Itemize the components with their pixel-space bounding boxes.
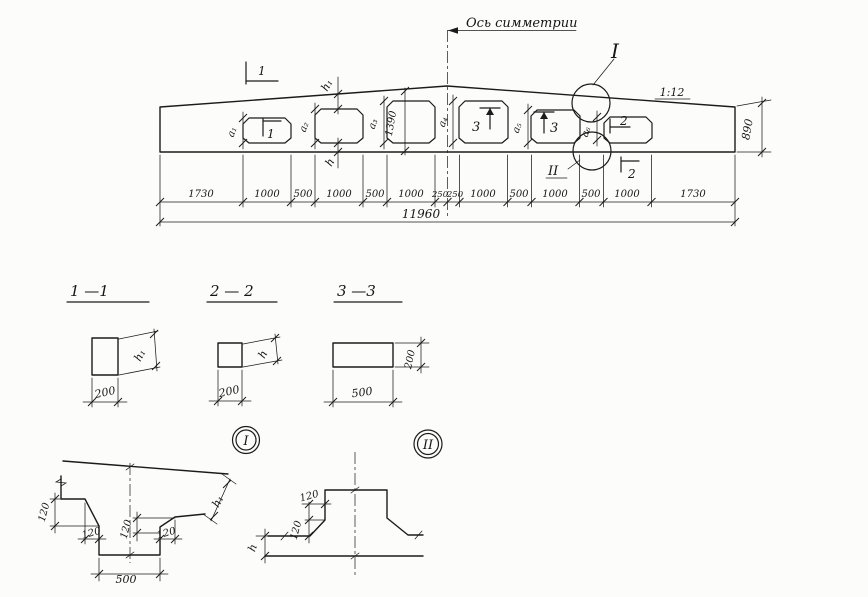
dim-opening-a5: a₅ <box>511 104 532 149</box>
height-890-label: 890 <box>739 118 755 141</box>
cut-1-digit: 1 <box>258 64 266 78</box>
chain-label: 1000 <box>614 189 640 200</box>
section-2-2: 2 — 2 200 h <box>207 282 282 406</box>
opening-4 <box>459 101 508 143</box>
detail-2-dim-h: h <box>245 542 260 553</box>
opening-2 <box>315 109 363 143</box>
dim-opening-a4: a₄ <box>437 95 457 149</box>
opening-6 <box>604 117 652 143</box>
beam-drawing-svg: Ось симметрии 1:12 890 1390 h₁ <box>0 0 868 597</box>
section-cut-2-bottom: 2 <box>621 157 639 181</box>
section-2-title: 2 — 2 <box>209 282 254 300</box>
section-2-height: h <box>256 348 271 360</box>
section-3-shape <box>333 343 393 367</box>
detail-circle-1 <box>572 84 610 122</box>
detail-2-dim-120: 120 <box>299 489 321 505</box>
chain-label: 500 <box>365 189 385 200</box>
a1-label: a₁ <box>226 126 240 139</box>
section-3-3: 3 —3 500 200 <box>324 282 429 407</box>
drawing-sheet: Ось симметрии 1:12 890 1390 h₁ <box>0 0 868 597</box>
a4-label: a₄ <box>437 116 451 129</box>
leader-arrow <box>448 27 458 33</box>
cut-3-digit: 3 <box>550 121 558 136</box>
section-cut-1-top: 1 <box>246 62 278 84</box>
detail-2-dim-120: 120 <box>289 519 305 541</box>
slope-annotation: 1:12 <box>655 86 690 99</box>
section-3-height: 200 <box>403 348 418 371</box>
chain-label: 1000 <box>326 189 352 200</box>
chain-label: 1000 <box>470 189 496 200</box>
section-3-width: 500 <box>351 385 374 401</box>
section-cut-1-bottom: 1 <box>263 118 281 141</box>
symmetry-axis-callout: Ось симметрии <box>448 16 577 34</box>
cut-2-digit: 2 <box>627 167 636 181</box>
chain-label: 1000 <box>398 189 424 200</box>
cut-2-digit: 2 <box>619 114 628 128</box>
svg-text:II: II <box>547 164 559 179</box>
section-cut-3-right: 3 <box>534 112 558 136</box>
section-1-width: 200 <box>93 384 117 401</box>
detail-2-balloon-label: II <box>422 438 434 453</box>
section-1-shape <box>92 338 118 375</box>
dim-opening-a2: a₂ <box>298 103 319 149</box>
a2-label: a₂ <box>298 121 312 134</box>
height-1390-label: 1390 <box>384 109 399 137</box>
detail-2-view: h 120 120 II <box>245 430 442 575</box>
chain-label: 1730 <box>188 189 214 200</box>
detail-1-balloon-label: I <box>242 434 249 449</box>
detail-1-profile <box>61 476 205 555</box>
section-2-width: 200 <box>217 383 241 400</box>
chain-label: 1730 <box>680 189 706 200</box>
detail-2-callout: II <box>546 160 580 179</box>
chain-label: 500 <box>293 189 313 200</box>
a3-label: a₃ <box>367 118 381 131</box>
dim-height-890: 890 <box>737 97 771 157</box>
beam-elevation: Ось симметрии 1:12 890 1390 h₁ <box>156 16 771 226</box>
dim-opening-a3: a₃ <box>367 96 388 149</box>
section-2-shape <box>218 343 242 367</box>
detail-1-view: 120 120 120 120 500 h₁ I <box>37 427 260 587</box>
dim-opening-a1: a₁ <box>226 112 247 149</box>
chain-label: 250 <box>446 190 464 200</box>
detail-circle-2 <box>573 132 611 170</box>
detail-1-callout: I <box>610 39 620 63</box>
h-label: h <box>323 156 338 169</box>
symmetry-axis-label: Ось симметрии <box>466 16 577 31</box>
cut-1-digit: 1 <box>267 127 275 141</box>
slope-label: 1:12 <box>660 86 685 99</box>
cut-3-digit: 3 <box>472 120 480 135</box>
section-1-height: h₁ <box>131 347 148 363</box>
h1-label: h₁ <box>318 77 335 93</box>
chain-label: 1000 <box>542 189 568 200</box>
chain-label: 500 <box>509 189 529 200</box>
section-1-1: 1 —1 200 h₁ <box>67 282 160 407</box>
total-length-label: 11960 <box>402 207 441 221</box>
dim-opening-a6: a₆ <box>580 111 601 146</box>
section-cut-3-left: 3 <box>472 108 500 135</box>
section-3-title: 3 —3 <box>337 282 376 300</box>
detail-1-dim-500: 500 <box>116 573 137 586</box>
chain-label: 500 <box>581 189 601 200</box>
a5-label: a₅ <box>511 122 525 135</box>
detail-1-dim-120: 120 <box>37 501 53 523</box>
chain-label: 1000 <box>254 189 280 200</box>
detail-1-dim-h1: h₁ <box>209 493 226 509</box>
section-1-title: 1 —1 <box>70 282 109 300</box>
detail-1-dim-120: 120 <box>119 518 135 540</box>
